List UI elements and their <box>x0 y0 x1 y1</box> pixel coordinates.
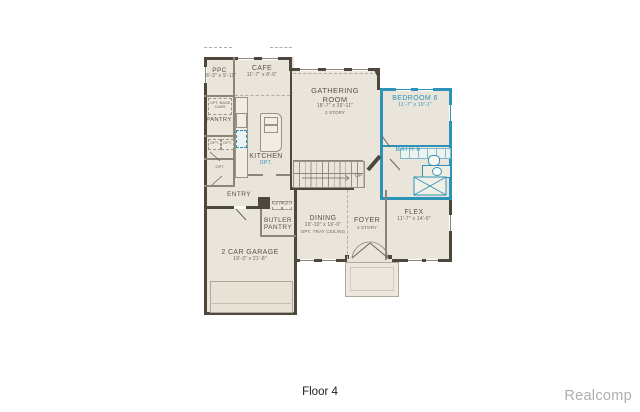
window <box>408 259 422 262</box>
room-label-bedroom6: BEDROOM 6 11'-7" x 10'-1" <box>382 95 448 109</box>
room-label-ppc: PPC 6'-3" x 9'-11" <box>206 67 233 80</box>
wall-segment <box>392 259 452 262</box>
room-dims: 10'-10" x 16'-0" <box>298 223 348 229</box>
window <box>426 259 438 262</box>
room-label-entry: ENTRY <box>217 191 261 198</box>
opt-butler-box: OPT. <box>272 201 282 210</box>
window <box>326 68 344 71</box>
wall-segment <box>294 190 297 315</box>
window <box>352 68 368 71</box>
room-label-kitchen: KITCHEN OPT. <box>242 153 290 167</box>
floor-label: Floor 4 <box>0 386 640 398</box>
room-label-pantry: PANTRY <box>204 117 234 124</box>
wall-segment <box>290 70 292 189</box>
opt-annotation: OPT. <box>212 165 228 169</box>
room-name: BATH 6 <box>390 146 426 153</box>
opt-butler-box: OPT. <box>282 201 292 210</box>
room-name: ENTRY <box>217 191 261 198</box>
opt-base-cabs-box: OPT. BASE CABS <box>208 98 232 115</box>
wall-segment-highlight <box>380 197 452 200</box>
wall-segment-interior <box>204 158 235 160</box>
room-name: FOYER <box>347 217 387 225</box>
room-label-garage: 2 CAR GARAGE 19'-3" x 21'-8" <box>208 249 292 263</box>
annotation: UP <box>355 173 363 179</box>
bath-sink <box>432 167 442 176</box>
porch-inner-line <box>350 267 394 291</box>
window <box>300 259 314 262</box>
gathering-ceiling-line <box>293 73 378 74</box>
wall-segment-highlight <box>380 88 452 91</box>
floor-plan: PPC 6'-3" x 9'-11" CAFE 11'-7" x 8'-6" P… <box>204 57 452 315</box>
room-note: 2 STORY <box>347 225 387 230</box>
garage-door <box>210 281 293 313</box>
window <box>300 68 318 71</box>
wall-segment <box>377 68 380 90</box>
room-label-flex: FLEX 11'-7" x 14'-0" <box>387 209 441 223</box>
annotation: OPT. BASE CABS <box>210 100 231 109</box>
room-label-cafe: CAFE 11'-7" x 8'-6" <box>237 65 287 79</box>
wall-segment-interior <box>260 235 296 237</box>
annotation: OPT. <box>216 164 225 169</box>
window <box>262 57 278 60</box>
cafe-kitchen-divider <box>235 95 290 96</box>
door-opening <box>234 206 246 209</box>
room-label-foyer: FOYER 2 STORY <box>347 217 387 230</box>
stairs-up-label: UP <box>350 174 368 180</box>
wall-segment-interior <box>204 135 235 137</box>
optional-dishwasher <box>236 130 247 148</box>
room-label-bath6: BATH 6 <box>390 146 426 153</box>
wall-segment <box>204 206 262 209</box>
window-highlight <box>396 88 411 91</box>
room-dims: 11'-7" x 8'-6" <box>237 73 287 79</box>
room-dims: 19'-3" x 21'-8" <box>208 257 292 263</box>
garage-door-line <box>210 303 291 304</box>
room-label-butler-pantry: BUTLER PANTRY <box>261 217 295 232</box>
wall-segment-interior <box>276 174 290 176</box>
window <box>238 57 254 60</box>
room-note: OPT. TRAY CEILING <box>298 229 348 234</box>
opt-closet-box: OPT. <box>208 139 221 150</box>
opt-closet-box: OPT. <box>221 139 234 150</box>
room-note: 2 STORY <box>300 110 370 115</box>
roof-line <box>204 47 232 48</box>
room-dims: 6'-3" x 9'-11" <box>206 74 233 80</box>
room-name: GATHERING ROOM <box>308 87 362 104</box>
annotation: OPT. <box>283 202 291 206</box>
kitchen-sink <box>236 113 247 128</box>
roof-line <box>270 47 292 48</box>
island-cooktop <box>264 125 278 133</box>
window <box>449 215 452 231</box>
annotation: OPT. <box>273 202 281 206</box>
realcomp-watermark: Realcomp <box>564 388 632 404</box>
window-highlight <box>449 105 452 121</box>
room-dims: 11'-7" x 10'-1" <box>382 103 448 109</box>
room-label-dining: DINING 10'-10" x 16'-0" OPT. TRAY CEILIN… <box>298 215 348 234</box>
annotation: OPT. <box>210 140 219 145</box>
kitchen-opt-note: OPT. <box>242 161 290 167</box>
island-cooktop <box>264 117 278 125</box>
window <box>322 259 336 262</box>
room-label-gathering: GATHERING ROOM 18'-7" x 20'-11" 2 STORY <box>300 87 370 115</box>
window-highlight <box>418 88 433 91</box>
chase-box <box>258 197 270 209</box>
room-name: PANTRY <box>204 117 234 124</box>
wall-segment <box>449 200 452 262</box>
wall-segment-interior <box>204 95 235 97</box>
toilet <box>428 155 440 166</box>
foyer-post <box>388 255 392 259</box>
room-dims: 11'-7" x 14'-0" <box>387 217 441 223</box>
wall-segment-interior <box>204 185 235 187</box>
room-name: BUTLER PANTRY <box>261 217 295 232</box>
annotation: OPT. <box>223 140 232 145</box>
